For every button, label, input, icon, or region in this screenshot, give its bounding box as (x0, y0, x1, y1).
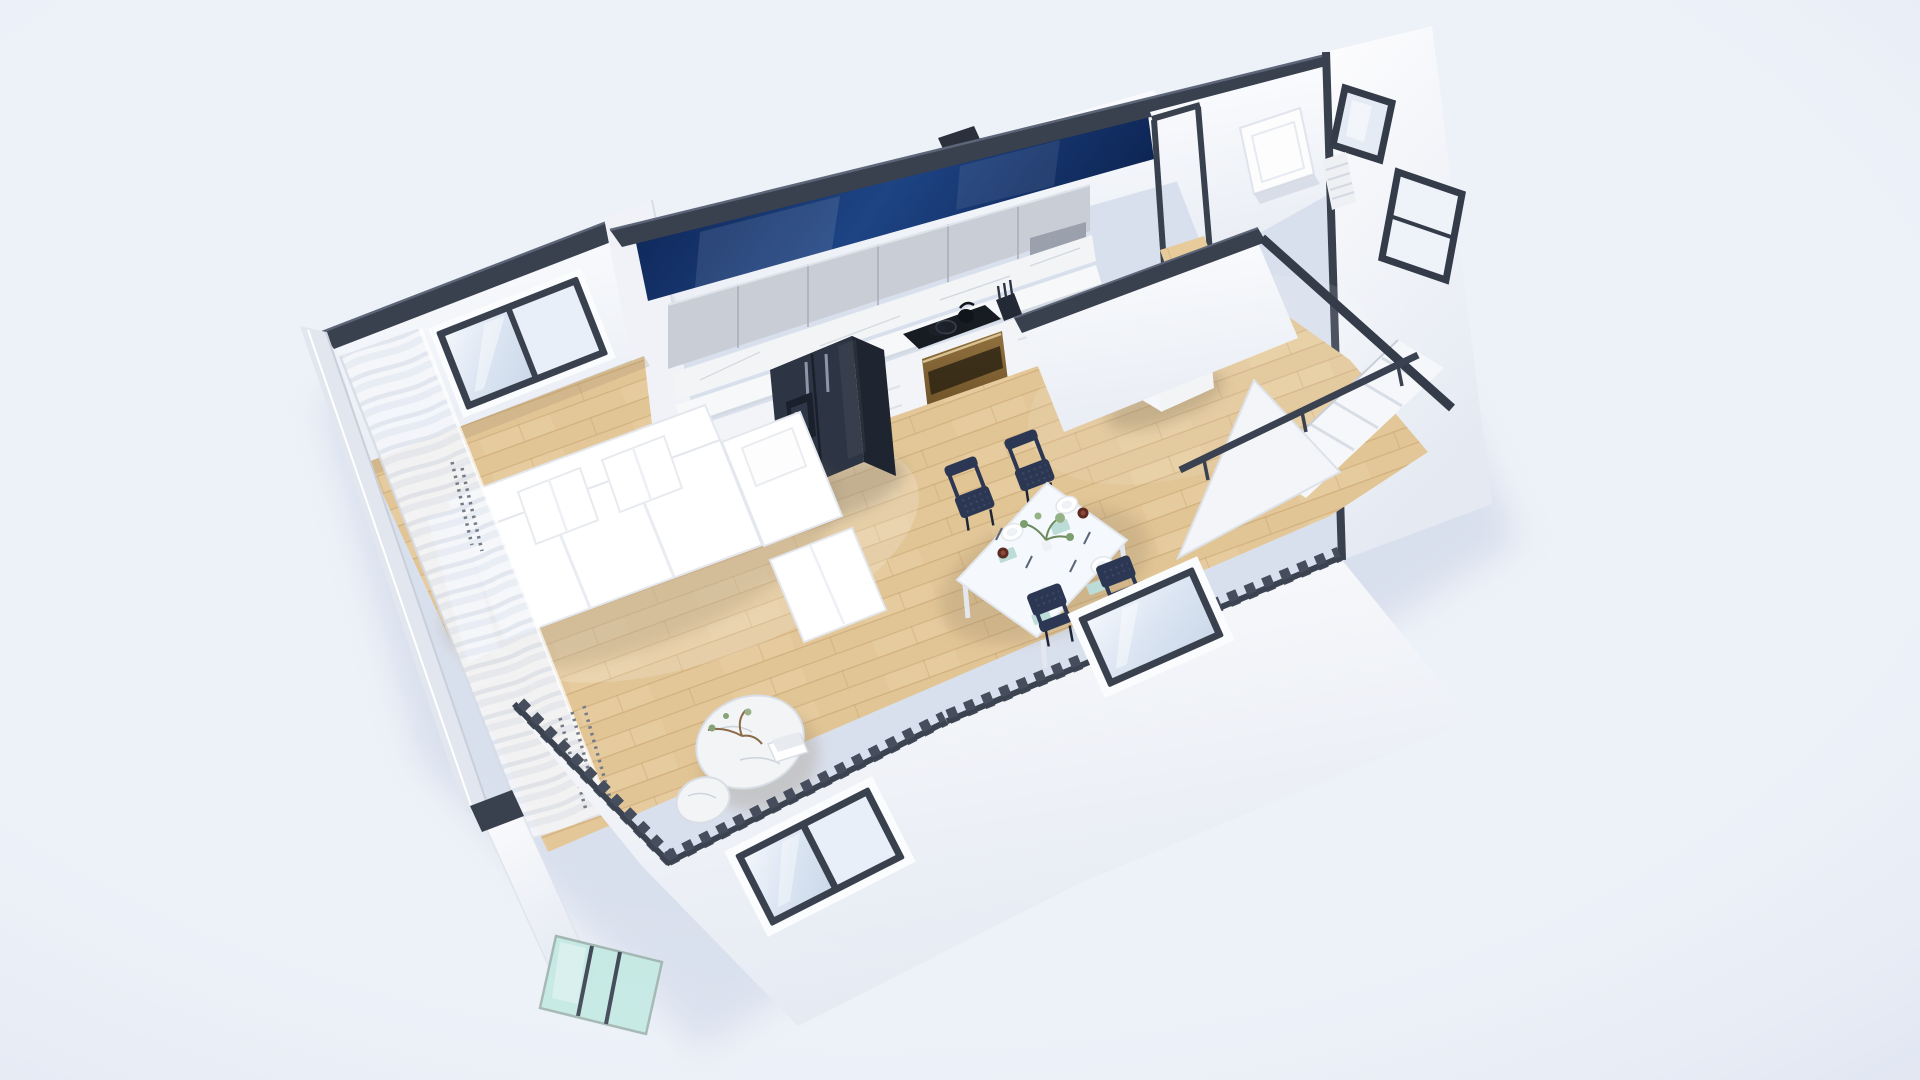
apartment-render (0, 0, 1920, 1080)
apartment-render-stage (0, 0, 1920, 1080)
vignette-overlay (0, 0, 1920, 1080)
